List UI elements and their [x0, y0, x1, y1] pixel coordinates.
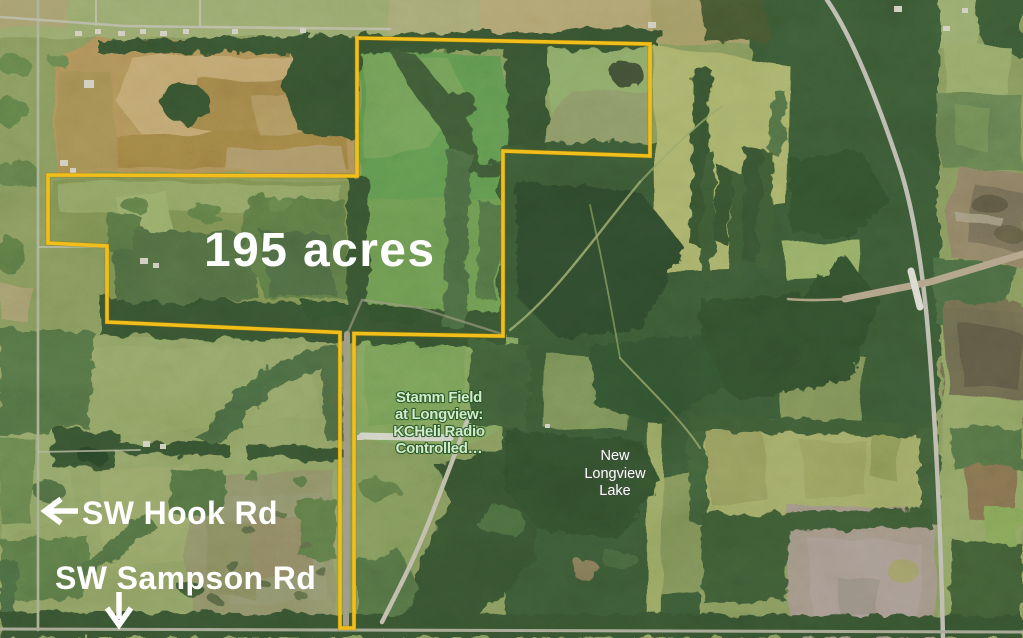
- svg-text:New: New: [600, 448, 630, 464]
- svg-text:at Longview:: at Longview:: [395, 406, 483, 423]
- svg-text:Stamm Field: Stamm Field: [396, 389, 482, 406]
- svg-text:Longview: Longview: [584, 466, 646, 482]
- svg-text:Lake: Lake: [599, 483, 630, 499]
- svg-text:KCHeli Radio: KCHeli Radio: [393, 423, 485, 440]
- svg-text:195 acres: 195 acres: [204, 224, 435, 277]
- svg-text:SW Sampson Rd: SW Sampson Rd: [55, 560, 316, 596]
- svg-text:Controlled…: Controlled…: [396, 440, 483, 457]
- svg-text:SW Hook Rd: SW Hook Rd: [82, 495, 278, 531]
